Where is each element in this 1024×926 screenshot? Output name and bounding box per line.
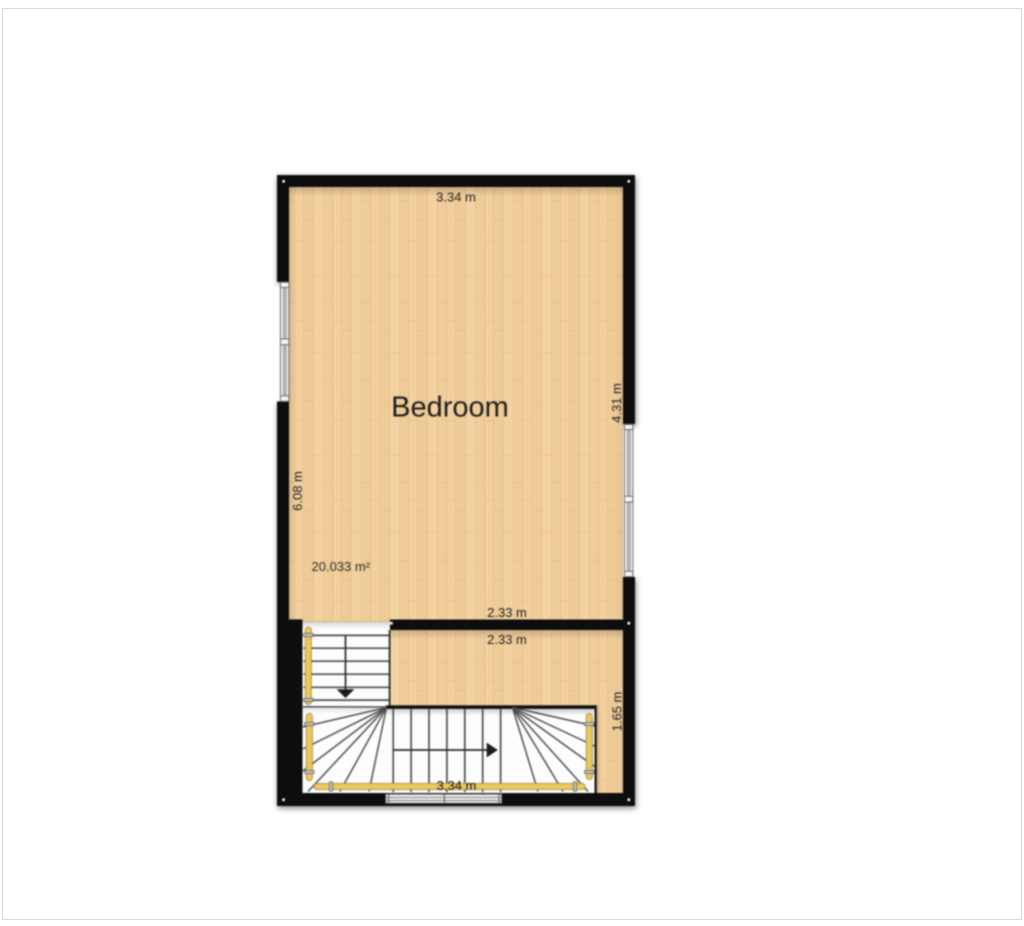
svg-text:1.65 m: 1.65 m <box>610 692 625 732</box>
svg-text:20.033 m²: 20.033 m² <box>312 559 371 574</box>
svg-text:3.34 m: 3.34 m <box>437 778 477 793</box>
svg-text:Bedroom: Bedroom <box>391 392 509 424</box>
svg-text:2.33 m: 2.33 m <box>487 632 527 647</box>
svg-text:2.33 m: 2.33 m <box>487 605 527 620</box>
svg-text:6.08 m: 6.08 m <box>290 471 305 511</box>
svg-text:3.34 m: 3.34 m <box>436 189 476 204</box>
svg-text:4.31 m: 4.31 m <box>609 383 624 423</box>
